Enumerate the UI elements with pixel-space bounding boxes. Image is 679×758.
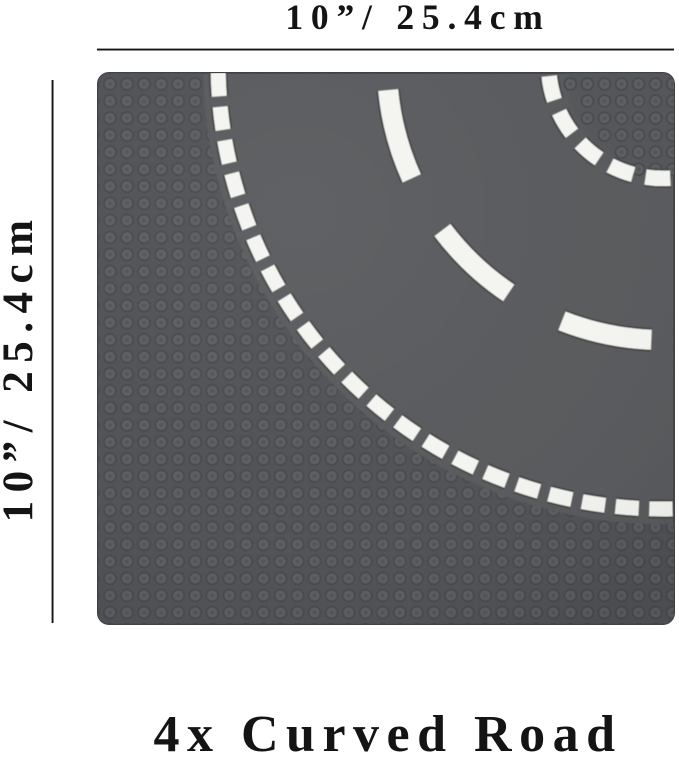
svg-text:4x Curved Road: 4x Curved Road xyxy=(153,706,622,758)
svg-text:10”/ 25.4cm: 10”/ 25.4cm xyxy=(0,212,42,523)
svg-text:10”/ 25.4cm: 10”/ 25.4cm xyxy=(285,0,550,37)
